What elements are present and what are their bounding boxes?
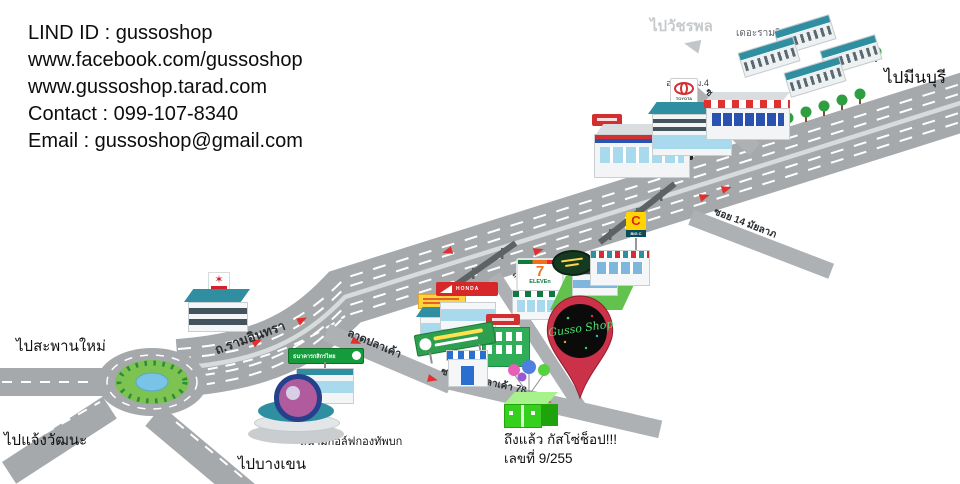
label-to-chaeng-watthana: ไปแจ้งวัฒนะ	[4, 428, 87, 452]
big-c-body	[590, 250, 650, 286]
kasikorn-logo-icon	[352, 351, 361, 360]
auto-service-body	[706, 108, 790, 140]
police-emblem-sign: ✶	[208, 272, 230, 291]
label-to-watcharaphon: ไปวัชรพล	[650, 14, 713, 38]
label-to-saphan-mai: ไปสะพานใหม่	[16, 334, 106, 358]
blue-kiosk-building	[446, 350, 488, 388]
gusso-shop-front	[504, 404, 542, 428]
map-canvas: LIND ID : gussoshop www.facebook.com/gus…	[0, 0, 960, 484]
toyota-sign-text: TOYOTA	[673, 96, 695, 101]
contact-facebook: www.facebook.com/gussoshop	[28, 47, 303, 74]
toyota-sign: TOYOTA	[670, 78, 698, 104]
apartment-cluster	[738, 16, 878, 102]
big-c-sign: C BIG C	[626, 212, 646, 238]
gusso-shop-side	[541, 404, 558, 426]
address-text: เลขที่ 9/255	[504, 447, 573, 469]
roundabout	[97, 348, 207, 416]
contact-website: www.gussoshop.tarad.com	[28, 74, 303, 101]
label-to-min-buri: ไปมีนบุรี	[884, 64, 946, 91]
honda-sign: HONDA	[436, 282, 498, 296]
label-to-bang-khen: ไปบางเขน	[238, 452, 306, 476]
contact-phone: Contact : 099-107-8340	[28, 101, 303, 128]
contact-info: LIND ID : gussoshop www.facebook.com/gus…	[28, 20, 303, 155]
golf-clubhouse-building	[246, 374, 346, 446]
blue-kiosk-body	[448, 359, 488, 387]
destination-pin: Gusso Shop	[542, 292, 618, 400]
police-roof	[184, 289, 250, 302]
big-c-letter: C	[626, 212, 646, 230]
honda-sign-text: HONDA	[456, 286, 496, 292]
contact-line-id: LIND ID : gussoshop	[28, 20, 303, 47]
police-station-building: ✶	[184, 272, 250, 330]
golf-emblem-icon	[274, 374, 322, 422]
pin-shape	[542, 292, 618, 400]
big-c-sign-pole	[635, 238, 637, 250]
big-c-band-text: BIG C	[626, 230, 646, 237]
police-emblem-icon: ✶	[214, 274, 223, 286]
banner-logo-icon	[418, 337, 432, 351]
restaurant-oval-sign	[552, 250, 594, 276]
kasikorn-bank-sign: ธนาคารกสิกรไทย	[288, 348, 364, 364]
toyota-logo-inner	[680, 82, 688, 95]
police-body	[188, 302, 248, 332]
watcharaphon-arrow-icon	[683, 36, 702, 53]
kasikorn-bank-sign-text: ธนาคารกสิกรไทย	[293, 353, 349, 361]
contact-email: Email : gussoshop@gmail.com	[28, 128, 303, 155]
honda-wing-icon	[440, 285, 452, 293]
big-c-building: C BIG C	[590, 212, 652, 286]
